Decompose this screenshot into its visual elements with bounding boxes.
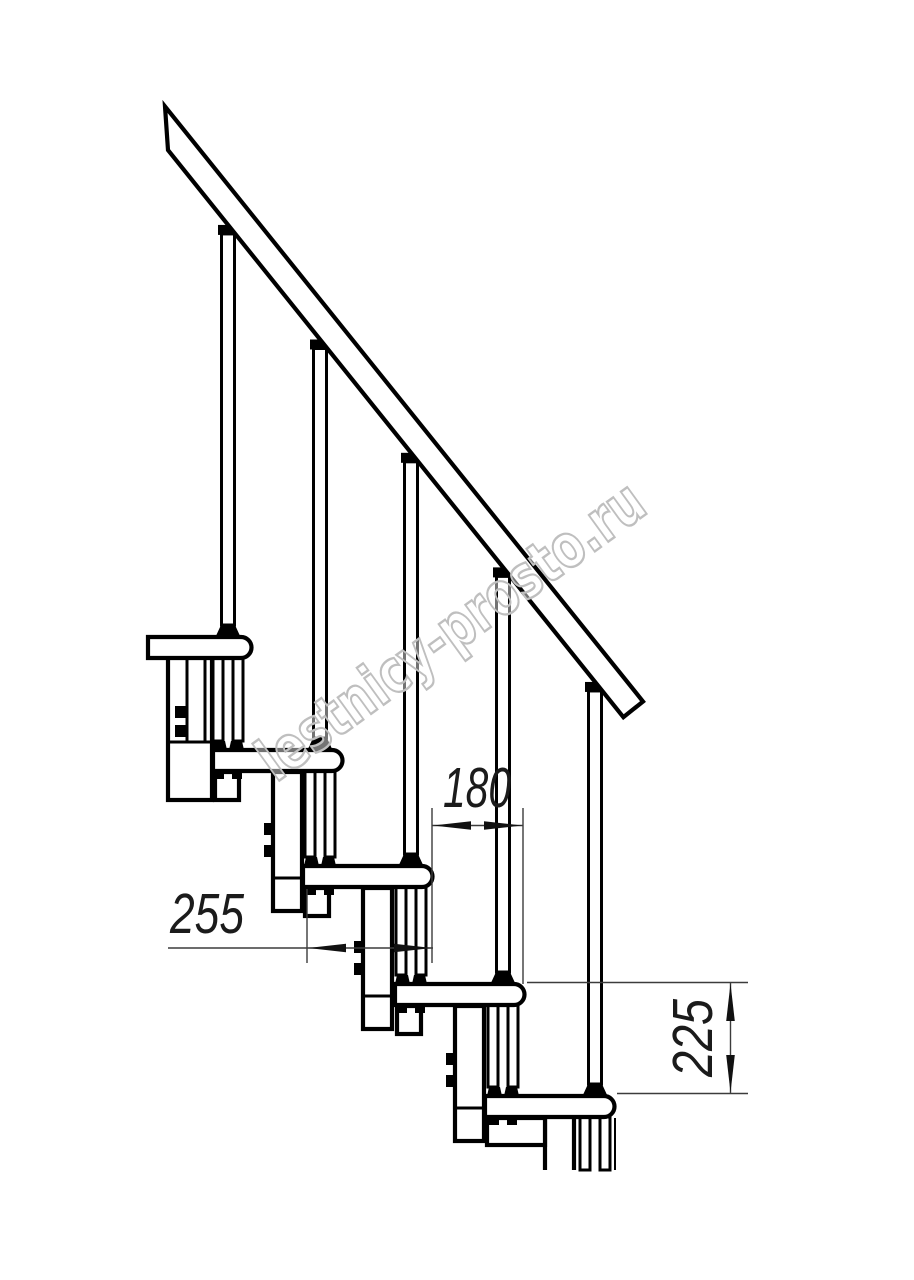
arrowhead-down-icon: [726, 1055, 735, 1093]
support-column: [455, 1006, 484, 1141]
tread: [395, 984, 525, 1005]
baluster-post: [222, 234, 235, 625]
connector-rod: [416, 887, 426, 975]
connector-rod: [233, 658, 243, 741]
connector-rod: [580, 1117, 590, 1170]
bolt-icon: [264, 823, 273, 835]
tread: [148, 637, 252, 658]
dimension-label-rise: 225: [661, 999, 725, 1078]
baluster-post: [589, 691, 602, 1084]
baluster-foot-icon: [398, 854, 424, 867]
connector-rod: [508, 1005, 518, 1087]
baluster-foot-icon: [582, 1084, 608, 1097]
bolt-icon: [264, 845, 273, 857]
tread: [485, 1096, 615, 1117]
bolt-icon: [354, 963, 363, 975]
tread: [303, 866, 433, 887]
connector-rod: [488, 1005, 498, 1087]
connector-rod: [396, 887, 406, 975]
dimension-label-going: 180: [443, 756, 511, 820]
arrowhead-up-icon: [726, 984, 735, 1022]
arrowhead-left-icon: [433, 821, 471, 830]
bolt-icon: [175, 706, 187, 718]
bolt-icon: [354, 941, 363, 953]
bolt-icon: [175, 725, 187, 737]
connector-rod: [213, 658, 223, 741]
bolt-icon: [446, 1053, 455, 1065]
drawing-canvas: 180 255 225 lestnicy-prosto.ru: [0, 0, 914, 1280]
connector-rod: [305, 771, 315, 857]
arrowhead-left-icon: [308, 944, 346, 953]
baluster-foot-icon: [215, 625, 241, 638]
connector-rod: [325, 771, 335, 857]
dimension-label-tread-depth: 255: [169, 882, 244, 946]
support-column: [363, 888, 392, 1029]
baluster-foot-icon: [490, 972, 516, 985]
bolt-icon: [446, 1075, 455, 1087]
dimension-rise: 225: [527, 983, 748, 1094]
staircase-technical-drawing: 180 255 225 lestnicy-prosto.ru: [0, 0, 914, 1280]
connector-rod: [600, 1117, 610, 1170]
